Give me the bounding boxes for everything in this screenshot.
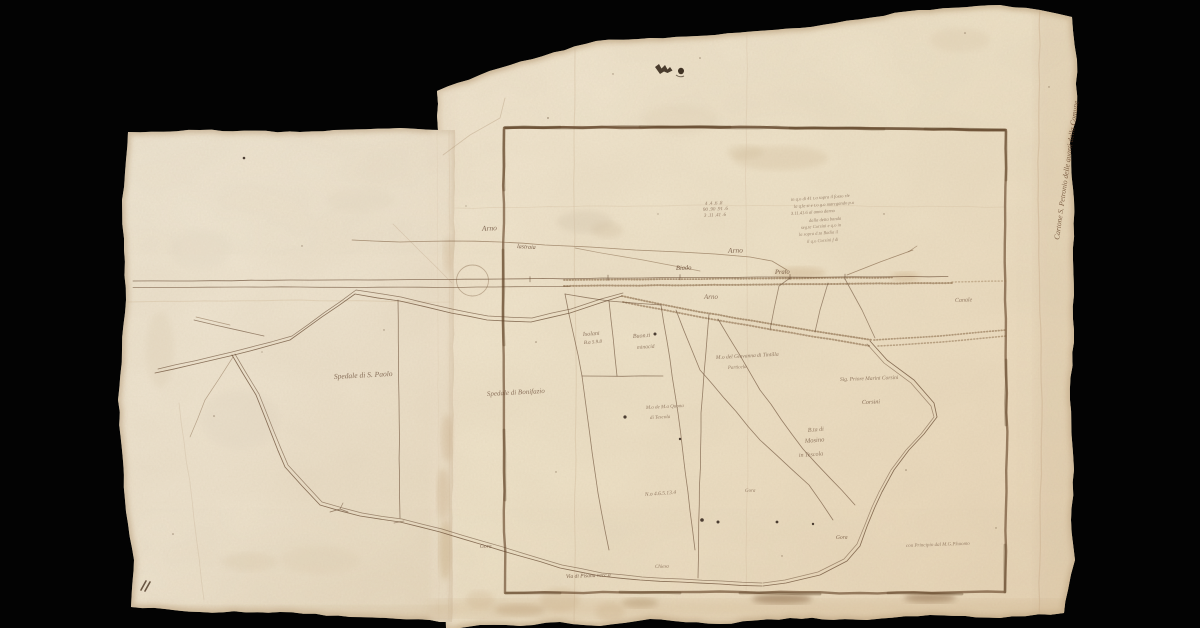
svg-text:Buon.ti: Buon.ti: [633, 333, 651, 340]
svg-text:Arno: Arno: [727, 245, 744, 255]
svg-text:Arno: Arno: [481, 223, 498, 233]
svg-text:Prato: Prato: [774, 268, 791, 276]
svg-text:Isolani: Isolani: [582, 331, 600, 338]
svg-text:minacid: minacid: [637, 344, 655, 351]
svg-text:Biado: Biado: [676, 264, 693, 272]
svg-text:Gora: Gora: [745, 489, 756, 494]
svg-text:lastraia: lastraia: [517, 244, 536, 251]
svg-text:Gora: Gora: [836, 535, 848, 541]
svg-text:Chiesa: Chiesa: [655, 564, 670, 569]
svg-text:Corsini: Corsini: [862, 399, 881, 406]
svg-text:Arno: Arno: [703, 293, 719, 301]
svg-text:Canale: Canale: [955, 297, 973, 304]
svg-text:Particela: Particela: [727, 365, 747, 371]
svg-text:Gora: Gora: [480, 544, 492, 550]
